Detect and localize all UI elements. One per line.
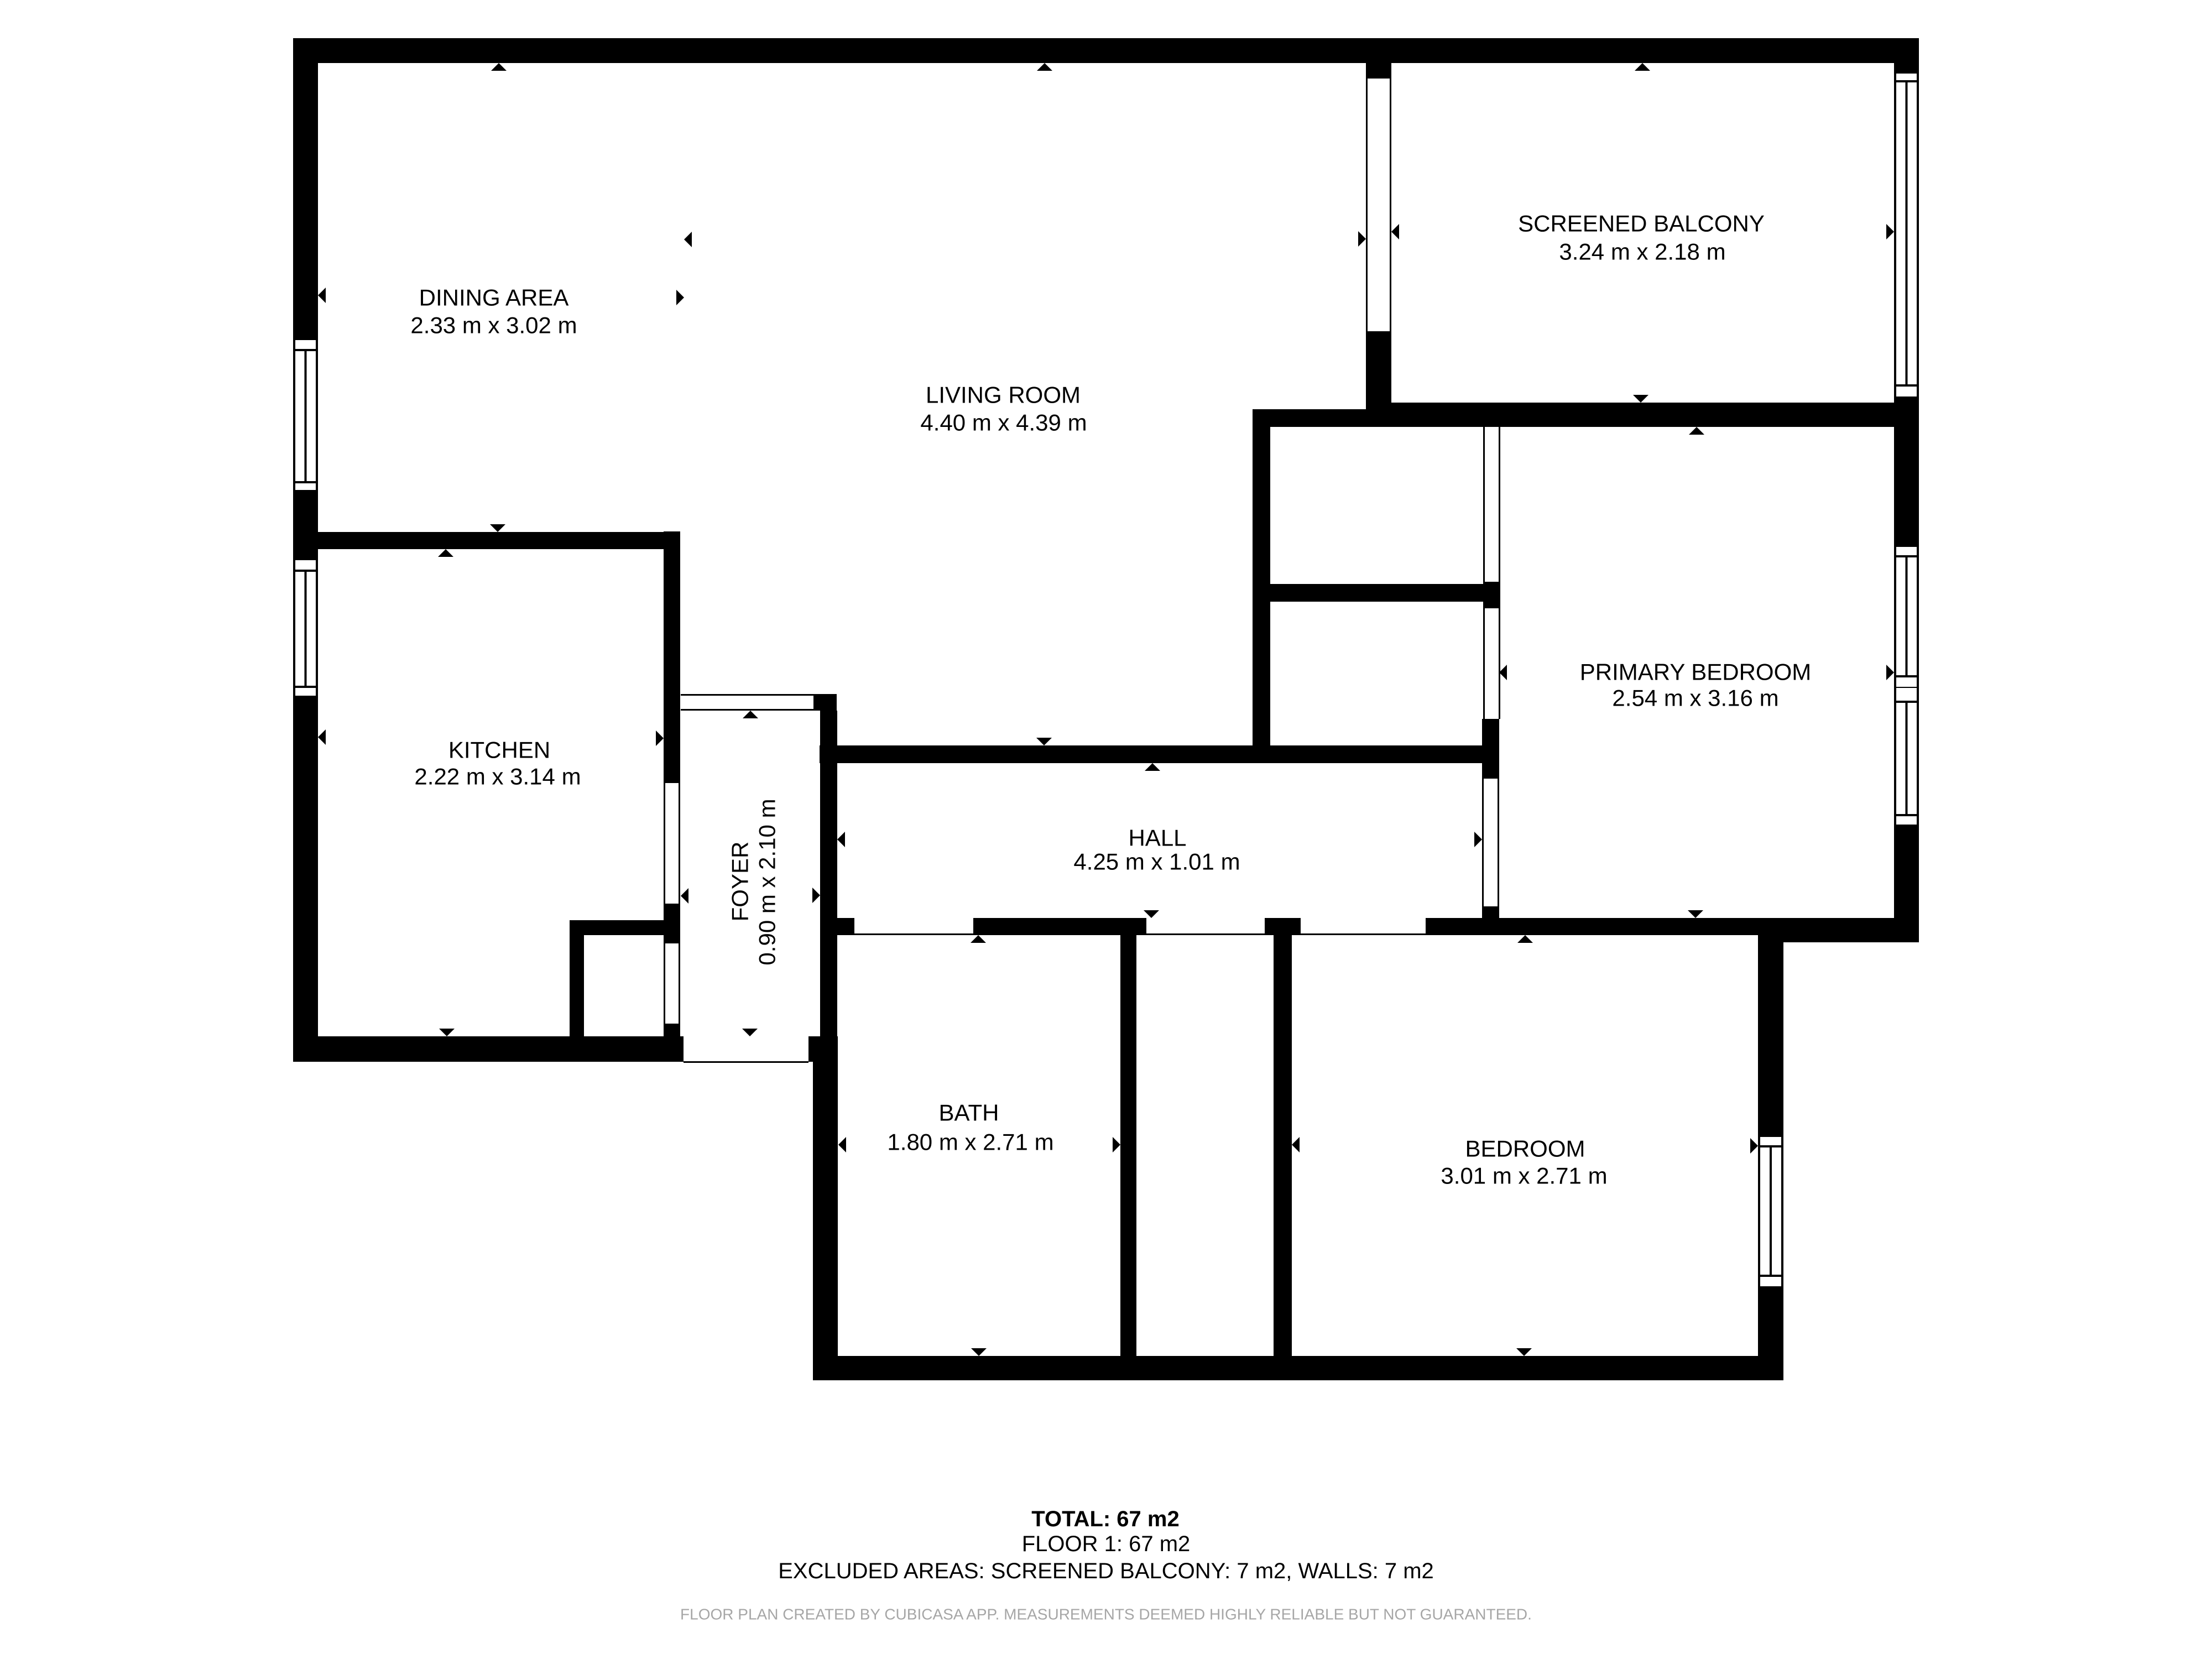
svg-text:TOTAL: 67 m2: TOTAL: 67 m2 (1031, 1507, 1179, 1531)
svg-text:2.33 m x 3.02 m: 2.33 m x 3.02 m (410, 312, 577, 338)
svg-text:DINING AREA: DINING AREA (419, 285, 569, 311)
svg-text:PRIMARY BEDROOM: PRIMARY BEDROOM (1580, 659, 1812, 685)
svg-text:2.22 m x 3.14 m: 2.22 m x 3.14 m (414, 764, 581, 790)
svg-text:2.54 m x 3.16 m: 2.54 m x 3.16 m (1612, 685, 1778, 711)
svg-text:0.90 m x 2.10 m: 0.90 m x 2.10 m (754, 799, 780, 965)
svg-text:SCREENED BALCONY: SCREENED BALCONY (1518, 211, 1765, 237)
svg-text:FOYER: FOYER (727, 842, 753, 922)
svg-text:4.25 m x 1.01 m: 4.25 m x 1.01 m (1073, 849, 1240, 875)
svg-text:BEDROOM: BEDROOM (1465, 1136, 1585, 1162)
svg-text:FLOOR 1: 67 m2: FLOOR 1: 67 m2 (1022, 1532, 1191, 1556)
svg-text:HALL: HALL (1128, 825, 1186, 851)
svg-text:1.80 m x 2.71 m: 1.80 m x 2.71 m (887, 1129, 1053, 1155)
svg-text:LIVING ROOM: LIVING ROOM (926, 382, 1081, 408)
svg-text:3.01 m x 2.71 m: 3.01 m x 2.71 m (1441, 1163, 1607, 1189)
svg-text:4.40 m x 4.39 m: 4.40 m x 4.39 m (920, 410, 1087, 436)
svg-text:KITCHEN: KITCHEN (448, 737, 550, 763)
svg-text:BATH: BATH (939, 1100, 999, 1126)
svg-text:3.24 m x 2.18 m: 3.24 m x 2.18 m (1559, 239, 1725, 265)
svg-text:EXCLUDED AREAS: SCREENED BALCO: EXCLUDED AREAS: SCREENED BALCONY: 7 m2, … (778, 1559, 1434, 1583)
svg-text:FLOOR PLAN CREATED BY CUBICASA: FLOOR PLAN CREATED BY CUBICASA APP. MEAS… (680, 1606, 1532, 1623)
